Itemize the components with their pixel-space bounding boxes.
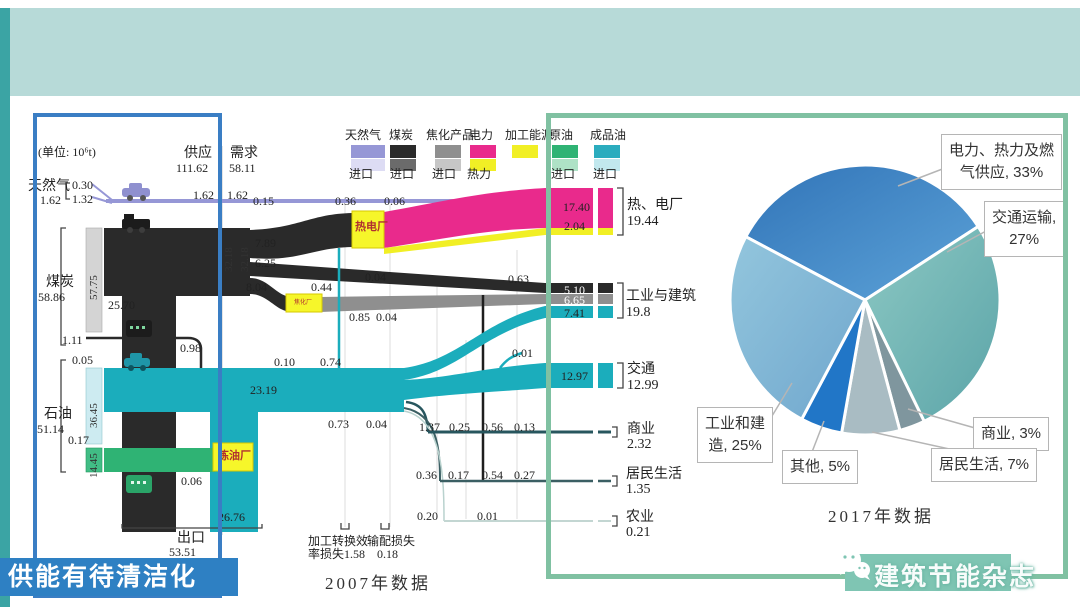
sink-name: 商业	[627, 423, 655, 437]
pie-slice-transport	[865, 227, 1000, 422]
flow-value: 0.20	[417, 510, 438, 522]
flow-value: 0.98	[180, 342, 201, 354]
sink-part-value: 12.97	[561, 370, 588, 382]
pie-label-line: 27%	[992, 229, 1056, 251]
slide: 上海市碳排放组成 组成 / 产能 / 节能 Shanghai 上海	[0, 0, 1080, 607]
flow-value: 0.05	[72, 354, 93, 366]
wechat-icon	[834, 542, 874, 586]
loss-value: 0.18	[377, 548, 398, 560]
flow-value: 25.70	[108, 299, 135, 311]
flow-natural-gas	[92, 184, 552, 203]
watermark-text: 建筑节能杂志	[874, 557, 1036, 593]
sink-total: 0.21	[626, 526, 651, 540]
pie-label-line: 交通运输,	[992, 207, 1056, 229]
flow-value: 0.54	[482, 469, 503, 481]
pie-slice-residential	[842, 300, 900, 435]
pie-label-line: 工业和建	[705, 413, 765, 435]
pie-chart	[730, 165, 1000, 435]
loss-label: 加工转换效	[308, 535, 368, 547]
legend-label: 天然气	[345, 129, 381, 141]
legend-label: 成品油	[590, 129, 626, 141]
sink-part-value: 2.04	[564, 220, 585, 232]
pie-label-other: 其他, 5%	[782, 450, 858, 484]
sink-part-value: 17.40	[563, 201, 590, 213]
flow-value: 0.04	[365, 271, 386, 283]
flow-coal	[86, 213, 545, 532]
pie-label-transport: 交通运输, 27%	[984, 201, 1064, 257]
pie-label-line: 气供应, 33%	[949, 162, 1054, 184]
refinery-node-label: 炼油厂	[218, 451, 251, 462]
source-gas-label: 天然气	[28, 180, 70, 194]
flow-value: 0.44	[311, 281, 332, 293]
bar-value: 14.45	[89, 453, 100, 478]
demand-value: 58.11	[229, 162, 256, 174]
legend-sub-label: 热力	[467, 168, 491, 180]
brackets	[61, 183, 623, 529]
flow-value: 0.06	[384, 195, 405, 207]
pie-label-commerce: 商业, 3%	[973, 417, 1049, 451]
chp-node-label: 热电厂	[355, 222, 388, 233]
pie-label-power: 电力、热力及燃 气供应, 33%	[941, 134, 1062, 190]
flow-value-vertical: 32.18	[240, 247, 251, 272]
sink-total: 2.32	[627, 438, 652, 452]
sink-name: 热、电厂	[627, 199, 683, 213]
bar-value: 57.75	[89, 275, 100, 300]
flow-value: 1.32	[72, 193, 93, 205]
legend-label: 原油	[549, 129, 573, 141]
pie-leader-lines	[772, 168, 988, 452]
sink-name: 居民生活	[626, 468, 682, 482]
flow-value: 1.62	[193, 189, 214, 201]
flow-value: 0.13	[514, 421, 535, 433]
flow-value: 0.17	[448, 469, 469, 481]
flow-value: 8.04	[246, 281, 267, 293]
flow-value: 0.01	[477, 510, 498, 522]
flow-value: 0.73	[328, 418, 349, 430]
loss-label: 率损失1.58	[308, 548, 365, 560]
legend-sub-label: 进口	[390, 168, 414, 180]
pie-slice-industry	[730, 237, 865, 420]
sankey-caption: 2007年数据	[325, 569, 431, 594]
flow-value: 0.30	[72, 179, 93, 191]
legend-sub-label: 进口	[551, 168, 575, 180]
legend-sub-label: 进口	[593, 168, 617, 180]
sink-total: 19.8	[626, 306, 651, 320]
flow-value: 0.06	[181, 475, 202, 487]
flow-value: 0.36	[335, 195, 356, 207]
flow-value: 0.27	[514, 469, 535, 481]
flow-value: 1.62	[227, 189, 248, 201]
sink-total: 19.44	[627, 215, 659, 229]
demand-label: 需求	[230, 147, 258, 161]
left-accent-strip	[0, 8, 10, 607]
sink-name: 交通	[627, 363, 655, 377]
oil-transport-icon	[126, 475, 152, 493]
sink-part-value: 7.41	[564, 307, 585, 319]
sink-total: 12.99	[627, 379, 659, 393]
coking-node-label: 焦化厂	[294, 300, 312, 306]
sink-part-value: 6.65	[564, 294, 585, 306]
unit-label: (单位: 10⁶t)	[38, 146, 96, 158]
source-oil-label: 石油	[44, 408, 72, 422]
flow-value: 0.25	[449, 421, 470, 433]
export-label: 出口	[177, 532, 205, 546]
flow-value: 0.04	[366, 418, 387, 430]
pie-slice-commerce	[865, 300, 924, 430]
coal-transport-icon	[126, 320, 152, 337]
flow-value: 0.56	[482, 421, 503, 433]
flow-value-vertical: 32.18	[224, 247, 235, 272]
supply-value: 111.62	[176, 162, 208, 174]
legend-sub-label: 进口	[432, 168, 456, 180]
export-value: 53.51	[169, 546, 196, 558]
flow-value: 0.04	[376, 311, 397, 323]
legend-label: 煤炭	[389, 129, 413, 141]
flow-value: 0.74	[320, 356, 341, 368]
source-coal-total: 58.86	[38, 291, 65, 303]
bar-value: 36.45	[89, 403, 100, 428]
flow-value: 0.01	[512, 347, 533, 359]
supply-label: 供应	[184, 147, 212, 161]
flow-crude-oil	[86, 448, 215, 472]
legend-label: 加工能源	[505, 129, 553, 141]
source-gas-total: 1.62	[40, 194, 61, 206]
flow-value: 23.19	[250, 384, 277, 396]
transport-icons	[122, 183, 152, 493]
pie-label-industry: 工业和建 造, 25%	[697, 407, 773, 463]
legend-label: 电力	[469, 129, 493, 141]
sink-name: 农业	[626, 511, 654, 525]
flow-value: 26.76	[218, 511, 245, 523]
pie-label-line: 电力、热力及燃	[949, 140, 1054, 162]
left-conclusion-badge: 供能有待清洁化	[0, 558, 238, 596]
source-coal-label: 煤炭	[46, 276, 74, 290]
pie-label-line: 造, 25%	[705, 435, 765, 457]
sink-total: 1.35	[626, 483, 651, 497]
flow-value: 1.37	[419, 421, 440, 433]
flow-value: 0.36	[416, 469, 437, 481]
legend-sub-label: 进口	[349, 168, 373, 180]
legend-label: 焦化产品	[426, 129, 474, 141]
pie-slice-other	[802, 300, 865, 433]
loss-label: 输配损失	[367, 535, 415, 547]
flow-value: 0.63	[508, 273, 529, 285]
flow-value: 0.17	[68, 434, 89, 446]
sink-name: 工业与建筑	[626, 290, 696, 304]
truck-icon	[122, 214, 150, 233]
source-oil-total: 51.14	[37, 423, 64, 435]
pie-caption: 2017年数据	[828, 502, 934, 527]
pie-label-residential: 居民生活, 7%	[931, 448, 1037, 482]
flow-value: 0.85	[349, 311, 370, 323]
header-band	[10, 8, 1080, 96]
teal-car-icon	[124, 353, 150, 371]
flow-value: 1.11	[62, 334, 83, 346]
flow-value: 6.25	[255, 257, 276, 269]
car-icon	[122, 183, 150, 201]
flow-value: 0.15	[253, 195, 274, 207]
flow-value: 7.89	[255, 237, 276, 249]
flow-value: 0.10	[274, 356, 295, 368]
